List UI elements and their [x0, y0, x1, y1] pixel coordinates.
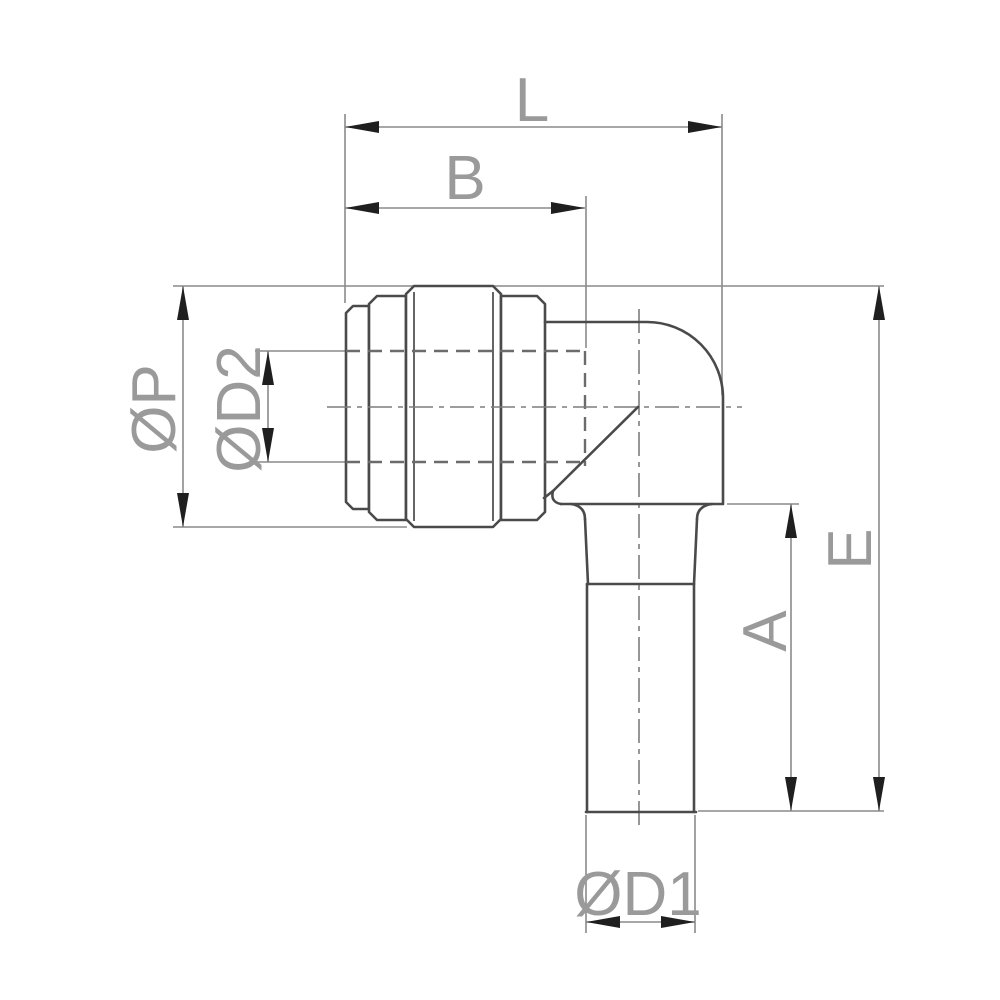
collet-front-ring: [369, 296, 406, 520]
dim-OP-arrow-down: [177, 493, 189, 527]
stem-upper-right-edge: [694, 519, 697, 584]
dim-A-arrow-down: [785, 777, 797, 811]
dimension-E: E: [816, 286, 885, 811]
dim-OP-arrow-up: [177, 286, 189, 320]
dim-B-label: B: [444, 144, 485, 213]
stem-upper-left-edge: [585, 519, 588, 584]
technical-drawing-canvas: L B ØP ØD2 E A ØD1: [0, 0, 1000, 1000]
elbow-fitting-drawing: L B ØP ØD2 E A ØD1: [0, 0, 1000, 1000]
elbow-chamfer-diagonal: [553, 407, 638, 491]
dim-E-arrow-up: [873, 286, 885, 320]
dim-OD1-label: ØD1: [574, 860, 701, 929]
dim-A-arrow-up: [785, 504, 797, 538]
stem-right-fillet: [697, 504, 712, 519]
dimension-B: B: [345, 144, 585, 214]
dimension-OD2: ØD2: [205, 345, 274, 472]
dim-E-label: E: [816, 528, 885, 569]
extension-lines: [173, 114, 884, 933]
dimension-A: A: [731, 504, 800, 811]
dim-L-arrow-right: [688, 121, 722, 133]
dim-L-arrow-left: [345, 121, 379, 133]
dim-L-label: L: [515, 66, 549, 135]
elbow-body: [544, 322, 723, 504]
dim-E-arrow-down: [873, 777, 885, 811]
stem-left-fillet: [571, 504, 585, 519]
dim-B-arrow-right: [551, 202, 585, 214]
dimension-OD1: ØD1: [574, 860, 701, 929]
dimension-OP: ØP: [120, 286, 189, 527]
elbow-corner-fillet: [552, 491, 561, 504]
dim-A-label: A: [731, 610, 800, 652]
dim-OD2-label: ØD2: [205, 345, 274, 472]
dim-OP-label: ØP: [120, 364, 189, 454]
dimension-L: L: [345, 66, 722, 135]
stem: [571, 504, 712, 812]
elbow-body-outline: [545, 322, 723, 504]
dim-B-arrow-left: [345, 202, 379, 214]
collet-rear-ring: [501, 296, 545, 520]
